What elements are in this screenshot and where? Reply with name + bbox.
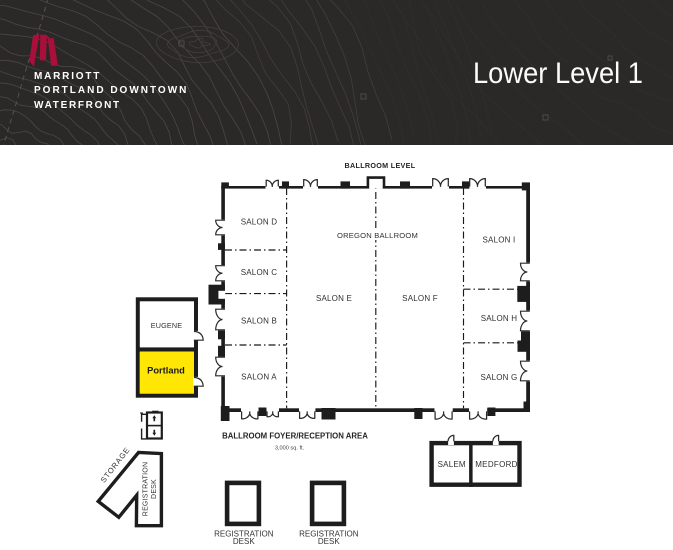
svg-text:REGISTRATION: REGISTRATION — [143, 462, 150, 516]
svg-text:SALON I: SALON I — [483, 235, 516, 244]
svg-text:3,000 sq. ft.: 3,000 sq. ft. — [275, 446, 305, 452]
svg-text:DESK: DESK — [233, 537, 255, 546]
svg-text:DESK: DESK — [318, 537, 340, 546]
svg-text:DESK: DESK — [151, 479, 158, 499]
svg-text:OREGON BALLROOM: OREGON BALLROOM — [337, 231, 418, 240]
svg-text:Portland: Portland — [147, 366, 185, 376]
svg-text:SALON H: SALON H — [481, 314, 518, 323]
svg-text:BALLROOM FOYER/RECEPTION AREA: BALLROOM FOYER/RECEPTION AREA — [222, 432, 368, 441]
svg-text:SALEM: SALEM — [438, 460, 466, 469]
svg-text:EUGENE: EUGENE — [151, 321, 183, 330]
svg-text:SALON G: SALON G — [481, 373, 518, 382]
svg-text:SALON C: SALON C — [241, 268, 278, 277]
svg-text:SALON F: SALON F — [402, 294, 438, 303]
svg-text:SALON B: SALON B — [241, 316, 277, 325]
svg-text:BALLROOM LEVEL: BALLROOM LEVEL — [345, 161, 416, 170]
svg-text:MEDFORD: MEDFORD — [475, 460, 518, 469]
svg-text:SALON D: SALON D — [241, 217, 278, 226]
svg-text:SALON A: SALON A — [241, 372, 277, 381]
svg-text:SALON E: SALON E — [316, 294, 352, 303]
